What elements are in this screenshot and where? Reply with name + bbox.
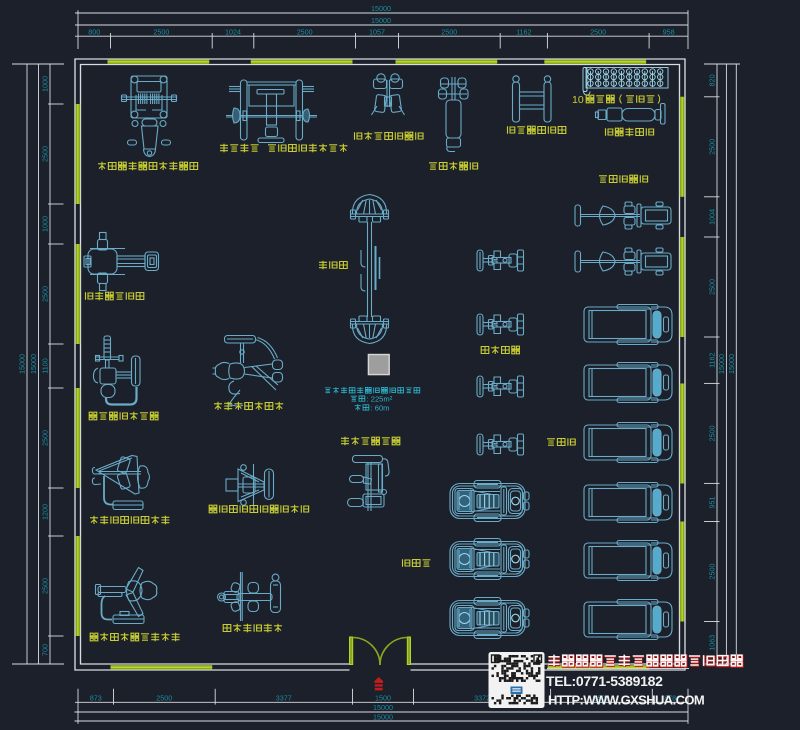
svg-text:2500: 2500 <box>708 564 717 580</box>
svg-text:HTTP:WWW.GXSHUA.COM: HTTP:WWW.GXSHUA.COM <box>548 693 704 708</box>
svg-text:1500: 1500 <box>375 694 391 703</box>
svg-text:700: 700 <box>41 644 50 656</box>
svg-text:2500: 2500 <box>441 27 457 36</box>
svg-text:2500: 2500 <box>708 139 717 155</box>
svg-text:2500: 2500 <box>590 27 606 36</box>
svg-text:1004: 1004 <box>708 209 717 225</box>
svg-text:1200: 1200 <box>41 504 50 520</box>
svg-text:2500: 2500 <box>41 286 50 302</box>
svg-text:2500: 2500 <box>41 430 50 446</box>
svg-text:800: 800 <box>88 27 100 36</box>
svg-text:15000: 15000 <box>717 354 726 374</box>
svg-text:2500: 2500 <box>708 425 717 441</box>
svg-text:3372: 3372 <box>474 694 490 703</box>
svg-text:1063: 1063 <box>708 635 717 651</box>
svg-text:958: 958 <box>663 27 675 36</box>
svg-text:2500: 2500 <box>156 694 172 703</box>
svg-text:1057: 1057 <box>369 27 385 36</box>
svg-text:1100: 1100 <box>41 358 50 373</box>
svg-text:1162: 1162 <box>708 352 717 367</box>
svg-text:: 225m²: : 225m² <box>367 395 393 404</box>
svg-text:10: 10 <box>572 94 584 106</box>
svg-text:1000: 1000 <box>41 76 50 92</box>
svg-text:15000: 15000 <box>371 4 391 13</box>
svg-text:2500: 2500 <box>153 27 169 36</box>
svg-text:TEL:0771-5389182: TEL:0771-5389182 <box>546 673 663 689</box>
svg-text:15000: 15000 <box>373 703 393 712</box>
svg-text:15000: 15000 <box>18 354 27 374</box>
svg-text:: 60m: : 60m <box>371 403 390 412</box>
svg-text:951: 951 <box>708 497 717 509</box>
svg-text:2500: 2500 <box>708 279 717 295</box>
svg-text:873: 873 <box>90 694 102 703</box>
svg-text:15000: 15000 <box>29 354 38 374</box>
svg-text:2500: 2500 <box>297 27 313 36</box>
svg-text:1162: 1162 <box>516 27 531 36</box>
svg-text:1024: 1024 <box>225 27 241 36</box>
svg-text:820: 820 <box>708 74 717 86</box>
svg-text:3377: 3377 <box>276 694 292 703</box>
svg-text:1000: 1000 <box>41 216 50 232</box>
svg-text:2500: 2500 <box>41 146 50 162</box>
svg-text:15000: 15000 <box>371 16 391 25</box>
svg-text:2500: 2500 <box>41 578 50 594</box>
svg-text:15000: 15000 <box>727 354 736 374</box>
svg-text:15000: 15000 <box>373 712 393 721</box>
